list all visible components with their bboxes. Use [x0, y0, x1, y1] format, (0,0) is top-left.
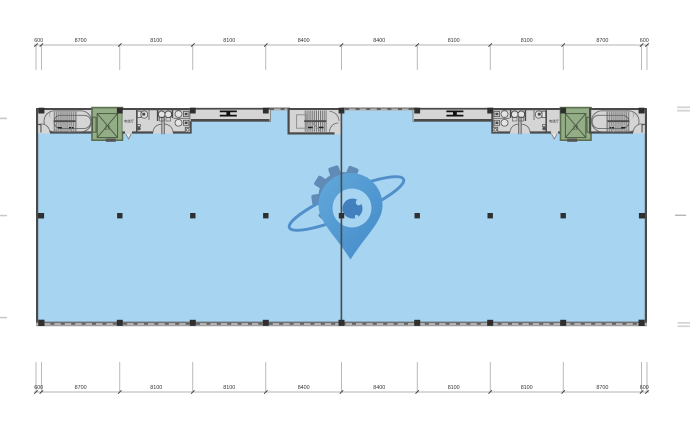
svg-text:8700: 8700 — [596, 385, 608, 391]
svg-text:8100: 8100 — [448, 385, 460, 391]
svg-text:8100: 8100 — [521, 38, 533, 44]
svg-text:8400: 8400 — [298, 385, 310, 391]
svg-text:8100: 8100 — [521, 385, 533, 391]
svg-text:8100: 8100 — [223, 385, 235, 391]
svg-text:电梯厅: 电梯厅 — [124, 119, 135, 124]
svg-text:8100: 8100 — [448, 38, 460, 44]
svg-text:8700: 8700 — [596, 38, 608, 44]
svg-text:600: 600 — [640, 385, 649, 391]
svg-text:8100: 8100 — [223, 38, 235, 44]
svg-text:600: 600 — [640, 38, 649, 44]
svg-text:600: 600 — [34, 38, 43, 44]
svg-text:电梯厅: 电梯厅 — [549, 119, 560, 124]
svg-text:8100: 8100 — [150, 38, 162, 44]
svg-text:600: 600 — [34, 385, 43, 391]
svg-text:8700: 8700 — [75, 38, 87, 44]
svg-text:3T: 3T — [104, 124, 110, 130]
svg-text:8700: 8700 — [75, 385, 87, 391]
svg-text:8400: 8400 — [298, 38, 310, 44]
svg-text:3T: 3T — [572, 124, 578, 130]
svg-text:8100: 8100 — [150, 385, 162, 391]
svg-text:8400: 8400 — [373, 385, 385, 391]
svg-text:8400: 8400 — [373, 38, 385, 44]
